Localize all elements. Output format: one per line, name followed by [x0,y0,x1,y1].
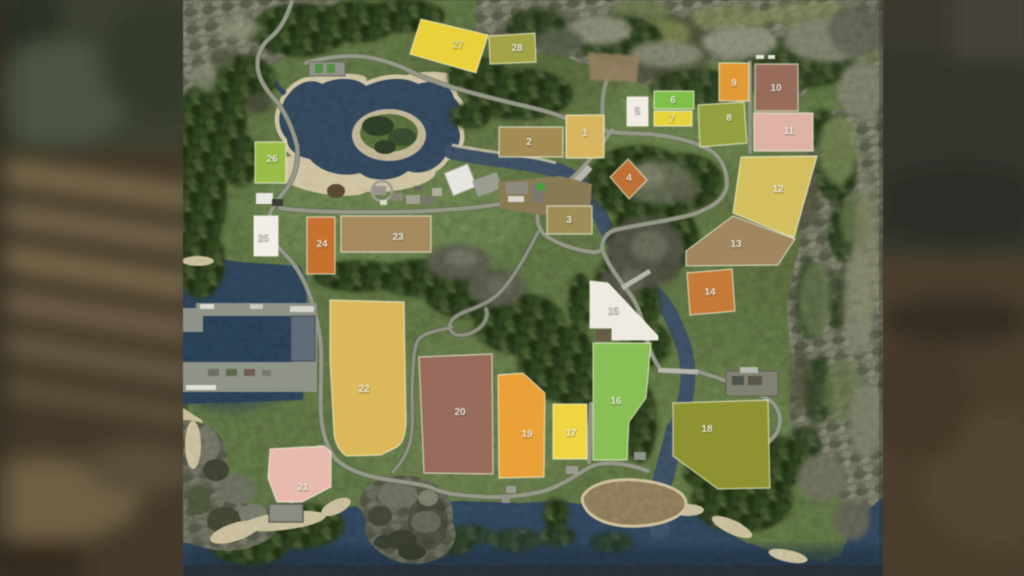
svg-text:1: 1 [582,128,588,139]
svg-text:4: 4 [626,173,632,184]
svg-text:26: 26 [266,154,278,165]
svg-text:24: 24 [316,239,328,250]
svg-text:17: 17 [565,428,577,439]
svg-text:13: 13 [730,239,742,250]
svg-text:28: 28 [511,43,523,54]
svg-text:18: 18 [701,424,713,435]
svg-text:9: 9 [731,78,737,89]
svg-text:10: 10 [770,83,782,94]
svg-text:8: 8 [726,113,732,124]
svg-text:23: 23 [392,232,404,243]
svg-text:25: 25 [257,233,269,244]
svg-text:20: 20 [454,407,466,418]
svg-text:16: 16 [610,396,622,407]
svg-text:21: 21 [297,482,309,493]
svg-text:5: 5 [634,106,640,117]
svg-text:3: 3 [566,215,572,226]
svg-text:6: 6 [670,95,676,106]
svg-text:7: 7 [669,114,675,125]
svg-text:15: 15 [607,306,619,317]
svg-text:14: 14 [704,287,716,298]
svg-text:22: 22 [358,384,370,395]
svg-text:19: 19 [521,429,533,440]
svg-text:27: 27 [452,40,464,51]
svg-text:11: 11 [784,126,795,137]
svg-text:2: 2 [526,137,532,148]
svg-text:12: 12 [772,184,784,195]
